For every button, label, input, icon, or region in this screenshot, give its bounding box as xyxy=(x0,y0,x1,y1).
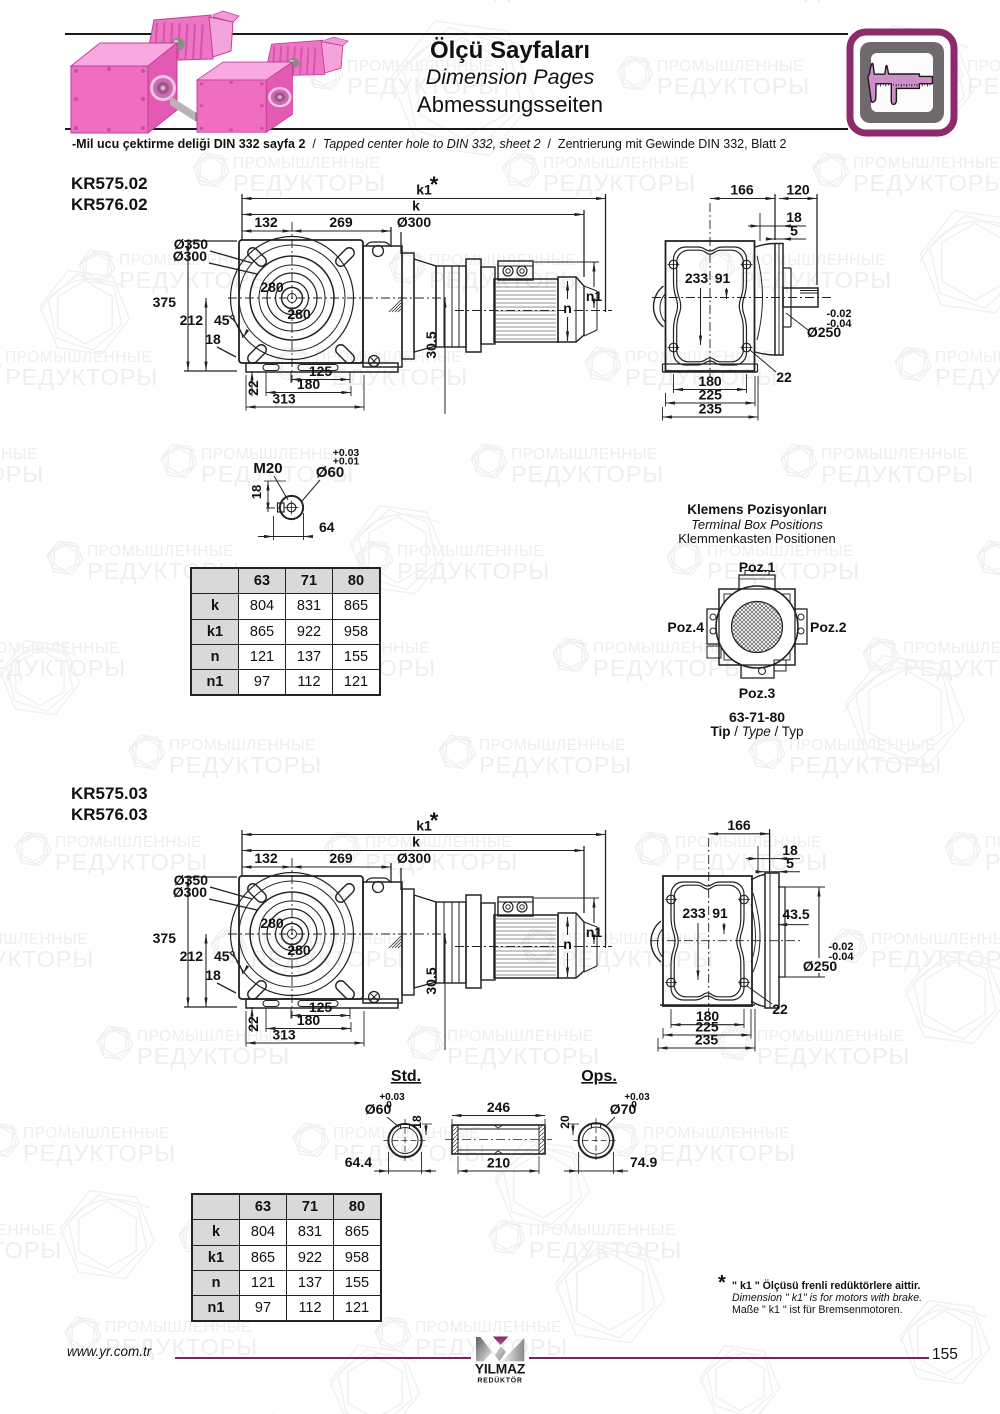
svg-text:235: 235 xyxy=(695,1032,719,1048)
svg-text:233: 233 xyxy=(685,270,709,286)
svg-text:233: 233 xyxy=(682,905,706,921)
svg-text:Ø300: Ø300 xyxy=(397,214,431,230)
svg-text:91: 91 xyxy=(712,905,728,921)
svg-text:-0.04: -0.04 xyxy=(826,318,852,330)
svg-text:M20: M20 xyxy=(253,460,282,477)
svg-text:120: 120 xyxy=(786,182,810,198)
svg-text:18: 18 xyxy=(410,1115,424,1129)
svg-text:132: 132 xyxy=(254,214,278,230)
svg-text:280: 280 xyxy=(260,915,284,931)
svg-text:Poz.4: Poz.4 xyxy=(667,619,704,635)
svg-text:22: 22 xyxy=(245,1016,261,1032)
svg-text:Ø300: Ø300 xyxy=(173,248,207,264)
svg-text:+0.01: +0.01 xyxy=(333,456,360,468)
svg-text:313: 313 xyxy=(272,391,296,407)
svg-text:43.5: 43.5 xyxy=(782,906,809,922)
svg-text:22: 22 xyxy=(772,1001,788,1017)
svg-text:212: 212 xyxy=(180,312,204,328)
svg-text:313: 313 xyxy=(272,1027,296,1043)
svg-text:280: 280 xyxy=(260,279,284,295)
svg-text:280: 280 xyxy=(287,306,311,322)
svg-text:Ø300: Ø300 xyxy=(173,884,207,900)
svg-text:n1: n1 xyxy=(586,924,603,940)
svg-text:63-71-80: 63-71-80 xyxy=(729,709,785,725)
svg-text:235: 235 xyxy=(699,401,723,417)
svg-text:-0.04: -0.04 xyxy=(828,951,854,963)
svg-text:*: * xyxy=(430,172,439,197)
svg-text:166: 166 xyxy=(727,817,751,833)
svg-text:18: 18 xyxy=(205,967,221,983)
svg-text:YILMAZ: YILMAZ xyxy=(475,1362,526,1377)
svg-text:30.5: 30.5 xyxy=(423,967,439,994)
svg-text:132: 132 xyxy=(254,850,278,866)
svg-text:0: 0 xyxy=(386,1100,392,1111)
svg-text:Std.: Std. xyxy=(391,1068,421,1085)
svg-text:Ops.: Ops. xyxy=(581,1068,617,1085)
svg-text:5: 5 xyxy=(786,855,794,871)
svg-text:20: 20 xyxy=(558,1115,572,1129)
svg-text:+0.03: +0.03 xyxy=(379,1092,405,1103)
svg-text:74.9: 74.9 xyxy=(630,1154,657,1170)
svg-text:45°: 45° xyxy=(214,948,235,964)
svg-text:Ø300: Ø300 xyxy=(397,850,431,866)
svg-text:REDÜKTÖR: REDÜKTÖR xyxy=(477,1376,522,1385)
svg-text:375: 375 xyxy=(153,930,177,946)
svg-text:5: 5 xyxy=(790,223,798,239)
svg-text:375: 375 xyxy=(153,294,177,310)
svg-text:166: 166 xyxy=(730,182,754,198)
svg-text:18: 18 xyxy=(249,485,264,499)
svg-text:0: 0 xyxy=(631,1100,637,1111)
svg-text:269: 269 xyxy=(329,214,353,230)
svg-text:269: 269 xyxy=(329,850,353,866)
svg-text:91: 91 xyxy=(715,270,731,286)
svg-text:45°: 45° xyxy=(214,312,235,328)
svg-text:210: 210 xyxy=(487,1155,511,1171)
svg-text:k: k xyxy=(412,834,420,850)
svg-text:n: n xyxy=(563,936,572,952)
svg-text:180: 180 xyxy=(297,1012,321,1028)
svg-text:18: 18 xyxy=(205,331,221,347)
svg-text:k: k xyxy=(412,198,420,214)
svg-text:30.5: 30.5 xyxy=(423,331,439,358)
svg-text:n: n xyxy=(563,300,572,316)
svg-text:22: 22 xyxy=(776,369,792,385)
svg-text:Poz.2: Poz.2 xyxy=(810,619,847,635)
svg-text:+0.03: +0.03 xyxy=(624,1092,650,1103)
svg-text:180: 180 xyxy=(297,376,321,392)
svg-text:Tip / Type / Typ: Tip / Type / Typ xyxy=(710,724,803,739)
svg-text:Poz.1: Poz.1 xyxy=(739,559,776,575)
svg-text:Poz.3: Poz.3 xyxy=(739,685,776,701)
svg-text:246: 246 xyxy=(487,1099,511,1115)
svg-text:280: 280 xyxy=(287,942,311,958)
svg-text:n1: n1 xyxy=(586,288,603,304)
svg-text:*: * xyxy=(430,808,439,833)
svg-text:64: 64 xyxy=(319,519,335,535)
svg-text:22: 22 xyxy=(245,380,261,396)
svg-text:64.4: 64.4 xyxy=(345,1154,372,1170)
svg-text:212: 212 xyxy=(180,948,204,964)
